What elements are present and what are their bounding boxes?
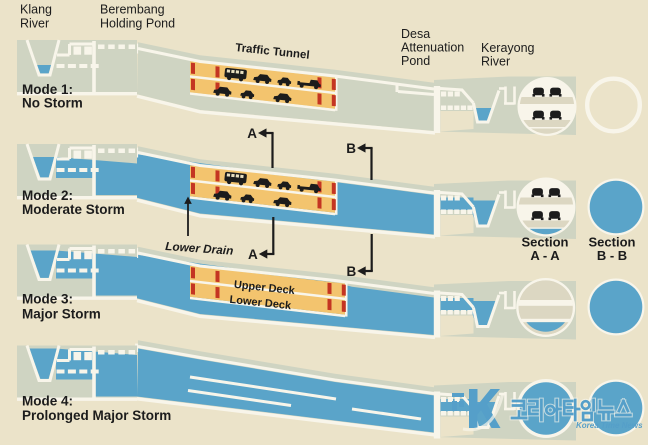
- svg-text:Prolonged Major Storm: Prolonged Major Storm: [22, 408, 171, 423]
- svg-text:Pond: Pond: [401, 54, 430, 68]
- svg-text:B - B: B - B: [597, 248, 627, 263]
- svg-text:Moderate Storm: Moderate Storm: [22, 202, 125, 217]
- svg-text:A: A: [247, 126, 257, 141]
- svg-text:Desa: Desa: [401, 27, 430, 41]
- svg-text:B: B: [346, 141, 356, 156]
- svg-text:River: River: [481, 55, 510, 69]
- svg-text:No Storm: No Storm: [22, 96, 83, 111]
- svg-text:B: B: [346, 264, 356, 279]
- svg-text:A: A: [248, 247, 258, 262]
- svg-text:Mode 4:: Mode 4:: [22, 394, 73, 409]
- svg-text:Berembang: Berembang: [100, 3, 165, 17]
- svg-text:Klang: Klang: [20, 3, 52, 17]
- svg-text:River: River: [20, 17, 49, 31]
- svg-text:A - A: A - A: [530, 248, 560, 263]
- svg-text:Mode 2:: Mode 2:: [22, 188, 73, 203]
- svg-text:Kerayong: Kerayong: [481, 41, 535, 55]
- svg-text:Major Storm: Major Storm: [22, 307, 101, 322]
- svg-text:Attenuation: Attenuation: [401, 41, 464, 55]
- svg-text:Holding Pond: Holding Pond: [100, 17, 175, 31]
- svg-text:Korea Time News: Korea Time News: [576, 421, 643, 430]
- svg-text:Mode 3:: Mode 3:: [22, 292, 73, 307]
